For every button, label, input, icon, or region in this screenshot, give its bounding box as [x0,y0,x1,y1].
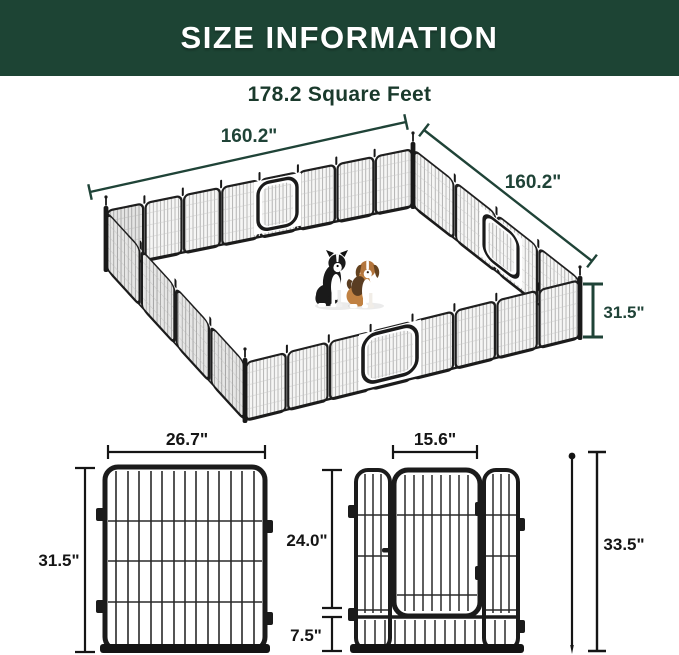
stake-head [569,453,576,460]
ground-stake-schematic: 33.5" [569,452,645,654]
door-height-dimension: 24.0" 7.5" [286,470,342,651]
door-width-dimension: 15.6" [393,429,477,459]
panel-height-dimension: 31.5" [38,468,95,652]
border-collie-dog [315,250,348,307]
pen-back-door [254,173,301,235]
door-bottom-label: 7.5" [290,626,322,645]
pen-height-label: 31.5" [603,303,644,322]
pen-wall-back-left [106,142,413,269]
door-panel-schematic: 15.6" 24.0" 7.5" [286,429,525,653]
door-latch [382,548,393,553]
pen-wall-front-right [245,273,580,421]
size-information-infographic: SIZE INFORMATION 178.2 Square Feet [0,0,679,655]
stake-height-label: 33.5" [603,535,644,554]
pen-front-door [359,319,421,390]
pen-depth-label: 160.2" [505,172,562,193]
stake-tip [570,645,574,654]
panel-height-label: 31.5" [38,551,79,570]
diagram-canvas: 160.2" 160.2" 31.5" 26.7" [0,0,679,655]
panel-base-bar [100,644,270,653]
door-width-label: 15.6" [414,429,456,449]
stake-height-dimension: 33.5" [588,452,645,651]
pen-width-label: 160.2" [221,126,278,147]
door-height-label: 24.0" [286,531,327,550]
pen-height-dimension: 31.5" [583,284,645,337]
single-panel-schematic: 26.7" 31.5" [38,429,273,653]
door-gate [394,470,480,616]
beagle-dog [347,261,380,309]
panel-width-label: 26.7" [166,429,208,449]
panel-width-dimension: 26.7" [108,429,265,459]
door-base-bar [350,644,524,653]
